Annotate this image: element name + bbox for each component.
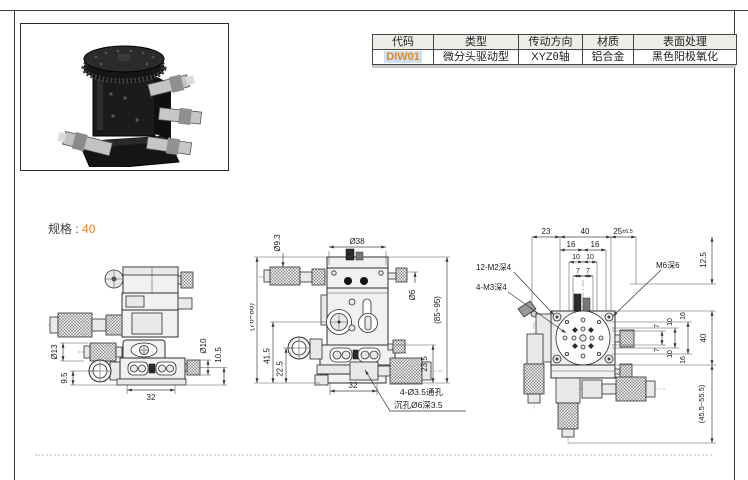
dim-16-left: 16	[567, 240, 576, 249]
col-material: 材质	[583, 35, 634, 50]
dim-41-5: 41.5	[263, 348, 272, 364]
dim-16-top-right: 16	[680, 312, 687, 320]
dim-40-top: 40	[581, 227, 590, 236]
page-left-rule	[14, 10, 15, 480]
table-underline	[372, 65, 736, 68]
dim-10-5: 10.5	[214, 347, 223, 363]
drawing-front-view: Ø38 Ø9.3 Ø6 (76~86) 41.5 22.5 (85~95) 23…	[250, 225, 478, 419]
dim-7-bottom-right: 7	[654, 348, 661, 352]
cell-material: 铝合金	[583, 50, 634, 65]
spec-table: 代码 类型 传动方向 材质 表面处理 DIW01 微分头驱动型 XYZθ轴 铝合…	[372, 34, 737, 65]
spec-label: 规格	[48, 222, 72, 236]
front-view-geometry	[258, 249, 442, 385]
dim-range-bottom: (45.5~55.5)	[697, 384, 706, 423]
col-code: 代码	[373, 35, 434, 50]
dim-32: 32	[147, 393, 156, 402]
spec-value: 40	[82, 222, 95, 236]
dotted-separator	[35, 454, 712, 456]
cell-drive-direction: XYZθ轴	[519, 50, 583, 65]
note-through-hole: 4-Ø3.5通孔	[400, 387, 443, 397]
page-right-rule	[734, 10, 735, 480]
dim-dia10: Ø10	[199, 338, 208, 354]
dim-32-front: 32	[349, 381, 358, 390]
dim-dia9-3: Ø9.3	[273, 234, 282, 252]
col-surface-finish: 表面处理	[634, 35, 737, 50]
dim-range-left: (76~86)	[250, 303, 256, 331]
page-top-rule	[0, 10, 748, 11]
cell-surface-finish: 黑色阳极氧化	[634, 50, 737, 65]
top-view-geometry	[518, 280, 665, 446]
product-photo-box	[20, 23, 229, 171]
cell-code: DIW01	[373, 50, 434, 65]
rotary-top-plate	[84, 46, 164, 81]
dim-dia6: Ø6	[408, 289, 417, 300]
dim-7-left: 7	[576, 268, 580, 275]
dim-dia13: Ø13	[50, 344, 59, 360]
spec-table-header-row: 代码 类型 传动方向 材质 表面处理	[373, 35, 737, 50]
catalog-page: 代码 类型 传动方向 材质 表面处理 DIW01 微分头驱动型 XYZθ轴 铝合…	[0, 0, 748, 480]
dim-range-right: (85~95)	[433, 296, 442, 324]
product-code: DIW01	[384, 51, 422, 63]
label-m3-holes: 4-M3深4	[476, 283, 507, 292]
note-counterbore: 沉孔Ø6深3.5	[394, 400, 443, 410]
cell-type: 微分头驱动型	[434, 50, 519, 65]
dim-10-right: 10	[586, 254, 594, 261]
side-view-geometry	[48, 267, 200, 385]
dim-25-tolerance: ±6.5	[622, 229, 633, 235]
dim-12-5: 12.5	[699, 252, 708, 268]
dim-23-5: 23.5	[420, 356, 429, 372]
product-photo	[21, 24, 225, 167]
label-m2-holes: 12-M2深4	[476, 263, 512, 272]
spec-size-line: 规格 : 40	[48, 220, 95, 237]
label-m6-hole: M6深6	[656, 261, 680, 270]
drawing-side-view: Ø13 9.5 32 Ø10 10.5	[48, 250, 258, 402]
dim-10-top-right: 10	[667, 318, 674, 326]
dim-16-bottom-right: 16	[680, 356, 687, 364]
drawing-top-view: 23 40 25±6.5 16 16 10 10 7 7 12-M2深4 4-M…	[470, 222, 722, 452]
dim-23: 23	[542, 227, 551, 236]
col-type: 类型	[434, 35, 519, 50]
dim-22-5: 22.5	[276, 361, 285, 377]
dim-dia38: Ø38	[349, 237, 365, 246]
dim-10-left: 10	[572, 254, 580, 261]
dim-10-bottom-right: 10	[667, 350, 674, 358]
dim-16-right: 16	[591, 240, 600, 249]
spec-table-data-row: DIW01 微分头驱动型 XYZθ轴 铝合金 黑色阳极氧化	[373, 50, 737, 65]
dim-9-5: 9.5	[60, 372, 69, 384]
dim-40-right: 40	[699, 333, 708, 342]
dim-7-right: 7	[586, 268, 590, 275]
dim-25-tol: 25±6.5	[613, 227, 633, 236]
dim-7-top-right: 7	[654, 324, 661, 328]
spec-separator: :	[75, 222, 78, 236]
col-drive-direction: 传动方向	[519, 35, 583, 50]
